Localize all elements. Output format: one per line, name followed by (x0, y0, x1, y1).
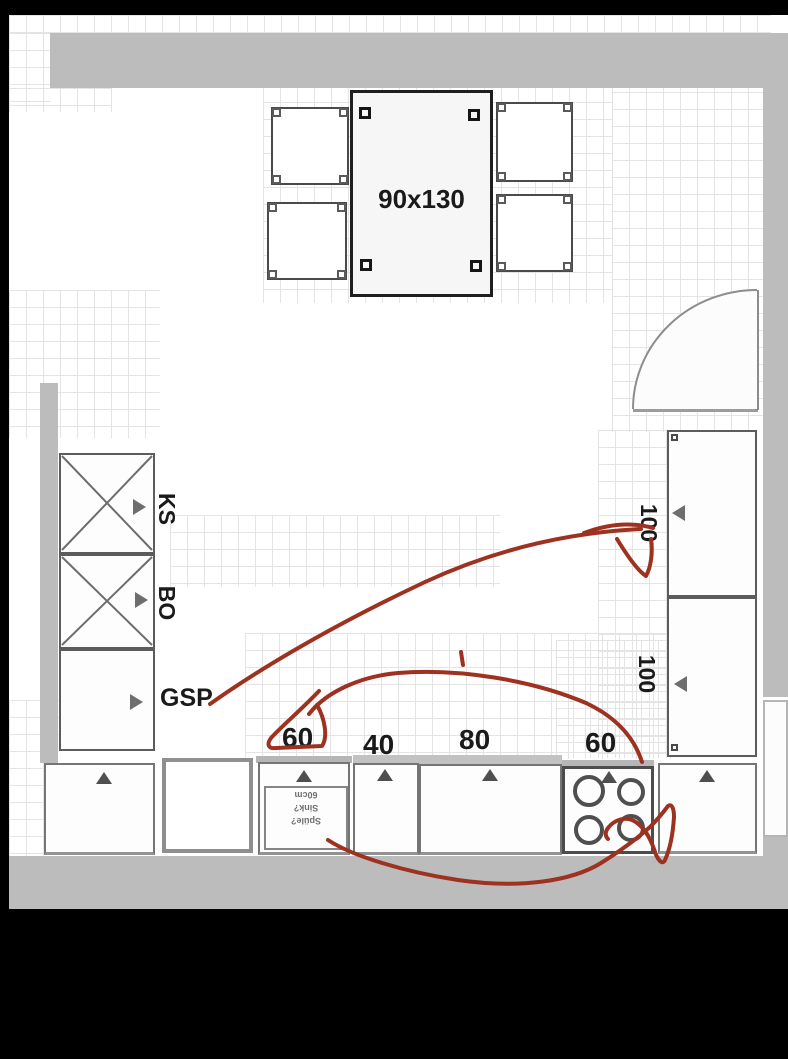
grid-patch (598, 430, 668, 758)
burner-icon (617, 814, 645, 842)
label-100-upper: 100 (627, 501, 671, 545)
wall-right-lower (763, 837, 788, 857)
cabinet-door-arrow-icon (482, 769, 498, 781)
wall-left (40, 383, 58, 763)
chair-bottom-right (496, 194, 573, 272)
cabinet-door-arrow-icon (674, 676, 687, 692)
cabinet-door-arrow-icon (699, 770, 715, 782)
cabinet-door-arrow-icon (96, 772, 112, 784)
burner-icon (573, 775, 605, 807)
label-100-lower: 100 (625, 652, 669, 696)
table-seat-mark (468, 109, 480, 121)
chair-top-right (496, 102, 573, 182)
burner-icon (574, 815, 604, 845)
grid-patch (9, 290, 160, 438)
table-seat-mark (360, 259, 372, 271)
sink-note-text: Spüle? Sink? 60cm (266, 788, 346, 835)
grid-patch (9, 88, 112, 112)
appliance-box (162, 758, 253, 853)
chair-bottom-left (267, 202, 347, 280)
door-leaf (633, 407, 758, 412)
chair-top-left (271, 107, 349, 185)
grid-patch (9, 15, 771, 33)
wall-opening-panel (763, 700, 788, 837)
label-sink-width: 60 (282, 722, 313, 754)
sink-note-box: Spüle? Sink? 60cm (264, 786, 348, 850)
cabinet-door-arrow-icon (672, 505, 685, 521)
wall-right (763, 85, 788, 697)
label-bo: BO (145, 581, 189, 625)
kitchen-floor-plan: 90x130 KS BO GSP 100 100 Spüle? Sink? 60… (0, 0, 788, 1059)
grid-patch (170, 515, 500, 587)
wall-top (50, 33, 788, 88)
door-frame (755, 290, 759, 410)
cabinet-door-arrow-icon (601, 771, 617, 783)
cabinet-door-arrow-icon (377, 769, 393, 781)
cabinet-door-arrow-icon (296, 770, 312, 782)
cabinet-hinge-mark (671, 434, 678, 441)
cabinet-hinge-mark (671, 744, 678, 751)
label-80: 80 (459, 724, 490, 756)
cabinet-door-arrow-icon (130, 694, 143, 710)
floor-band-bottom (9, 856, 788, 909)
grid-patch (612, 58, 763, 432)
table-seat-mark (359, 107, 371, 119)
burner-icon (617, 778, 645, 806)
label-ks: KS (145, 487, 189, 531)
table-seat-mark (470, 260, 482, 272)
counter-edge (419, 755, 562, 764)
label-40: 40 (363, 729, 394, 761)
table-size-label: 90x130 (350, 184, 493, 215)
label-cooktop-width: 60 (585, 727, 616, 759)
label-gsp: GSP (160, 684, 213, 713)
